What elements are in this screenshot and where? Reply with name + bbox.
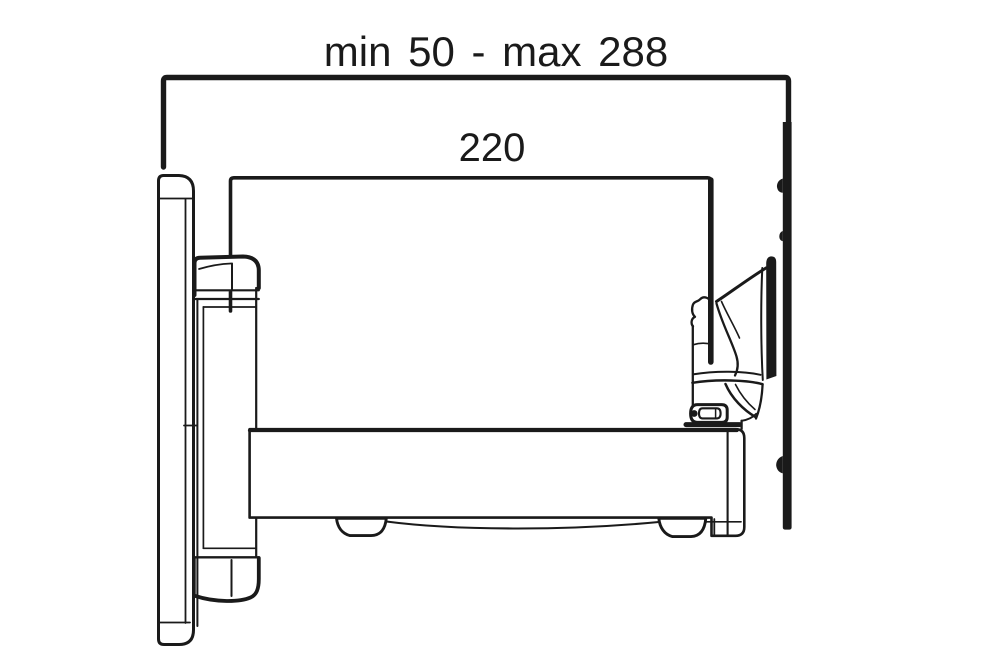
bracket-bottom-hook	[195, 558, 259, 601]
joint-top-sweep	[717, 268, 767, 302]
wall-plate-bump-bottom	[776, 456, 783, 473]
joint-front-plate	[766, 256, 776, 379]
tv-panel	[159, 176, 197, 645]
arm-pivot-foot-right	[659, 518, 706, 536]
joint-wedge-outer	[726, 384, 756, 417]
joint-wedge-inner	[736, 385, 756, 410]
clip-slot	[699, 408, 721, 418]
wall-plate	[776, 122, 791, 530]
arm-pivot-foot-left	[337, 518, 387, 535]
dimension-label-overall: min 50 - max 288	[324, 28, 668, 75]
extension-arm	[250, 429, 745, 536]
wall-plate-rail	[783, 122, 792, 530]
joint-flange-line-b	[692, 380, 762, 384]
joint-front-plate-edge	[761, 268, 763, 380]
wall-plate-bump-top	[777, 179, 783, 193]
dimension-label-arm: 220	[459, 126, 526, 170]
tv-panel-outline	[159, 176, 194, 645]
technical-drawing-canvas: min 50 - max 288 220	[0, 0, 1000, 667]
wall-plate-bump-mid	[779, 231, 782, 241]
locking-clip	[686, 405, 740, 425]
joint-neck-curve-b	[722, 302, 740, 339]
arm-underside-curve	[386, 522, 659, 529]
dimension-line-arm	[231, 178, 711, 311]
wall-mount-side-view-diagram: min 50 - max 288 220	[0, 0, 1000, 667]
joint-flange-line-a	[693, 372, 761, 375]
clip-end-cap	[691, 410, 698, 417]
dimension-arm-length: 220	[231, 126, 711, 311]
